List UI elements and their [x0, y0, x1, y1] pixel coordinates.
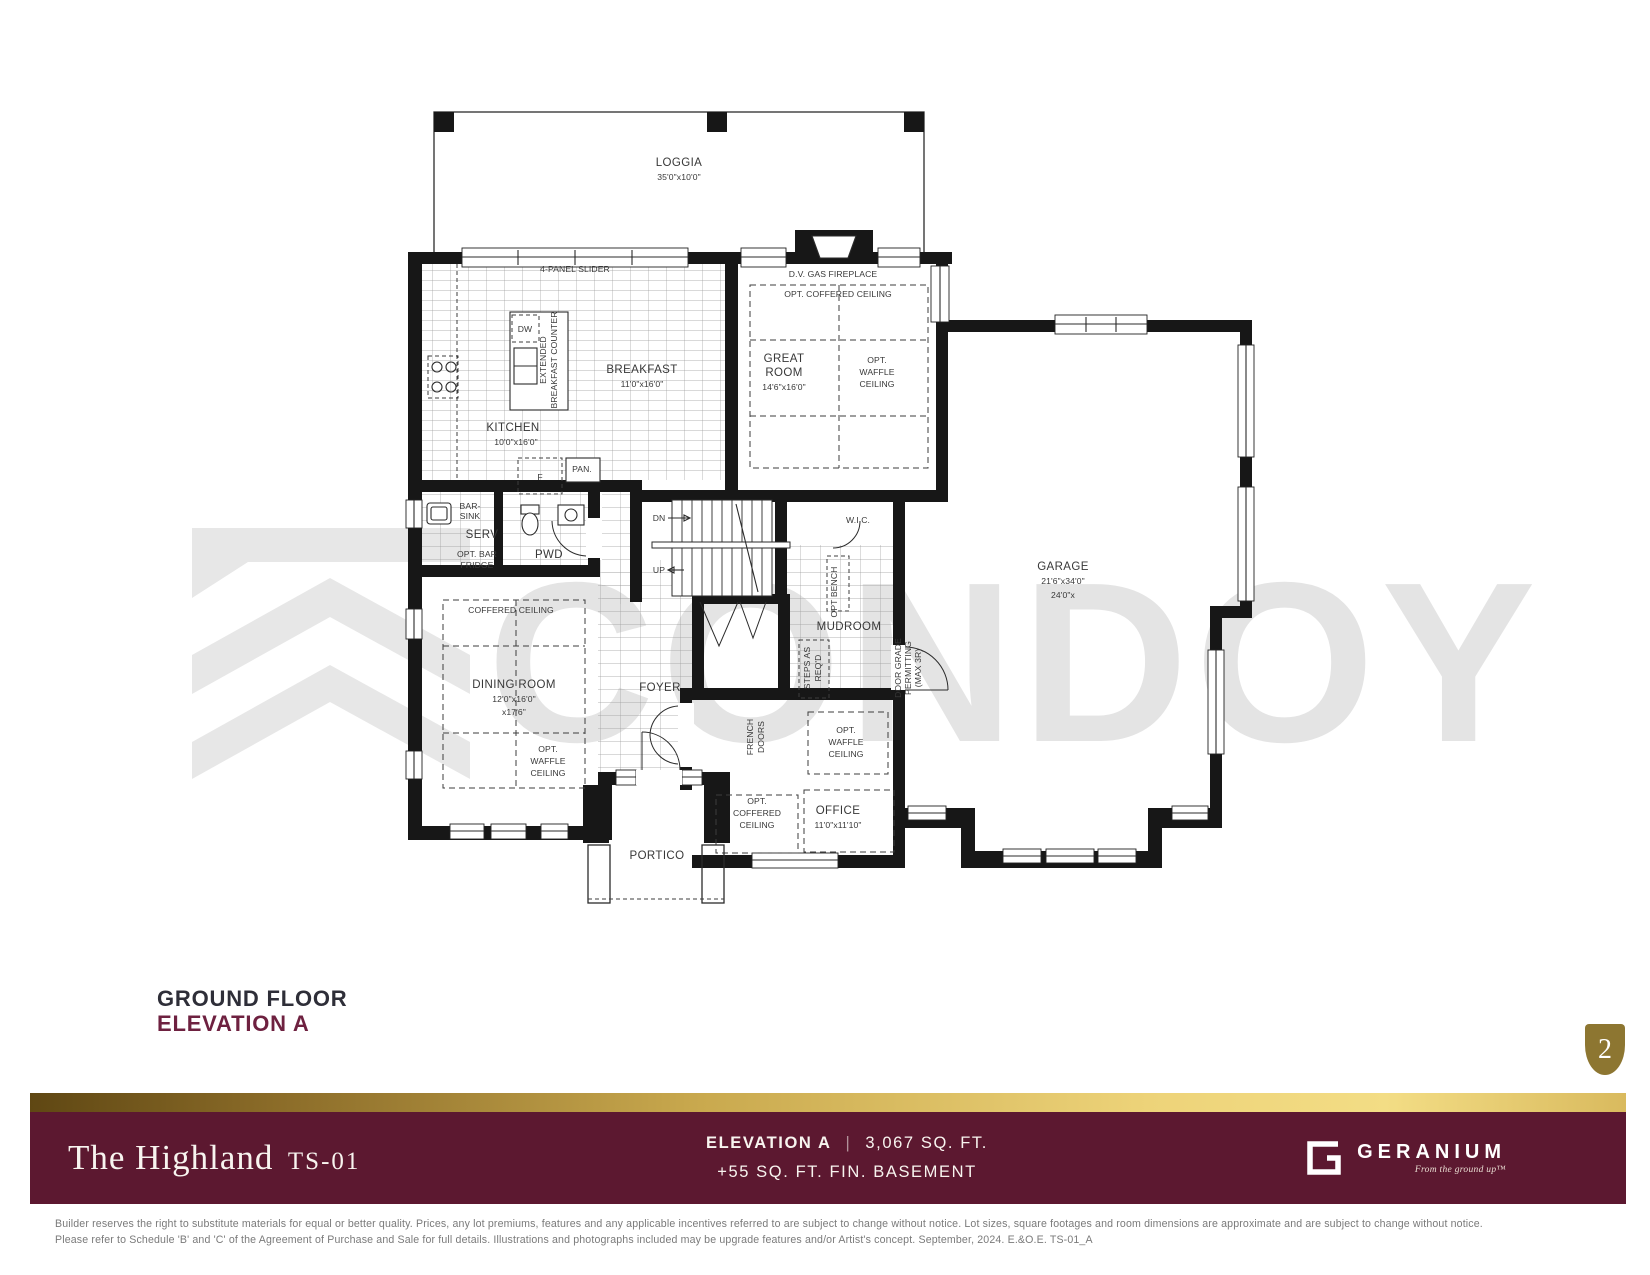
stats-divider: | [845, 1134, 851, 1152]
plan-label: FRIDGE [460, 560, 493, 570]
plan-label: F [537, 472, 542, 482]
plan-label: KITCHEN [486, 422, 539, 434]
plan-label: REQ'D [813, 655, 823, 682]
plan-label: OFFICE [816, 805, 861, 817]
plan-label: OPT. [747, 796, 767, 806]
plan-label: DOOR GRADE [893, 638, 903, 698]
plan-label: WAFFLE [828, 737, 863, 747]
plan-label: 11'0"x16'0" [621, 379, 664, 389]
plan-heading: GROUND FLOOR ELEVATION A [157, 986, 347, 1036]
floor-title: GROUND FLOOR [157, 986, 347, 1011]
brand-block: GERANIUM From the ground up™ [1206, 1138, 1626, 1178]
basement-value: +55 SQ. FT. FIN. BASEMENT [488, 1158, 1206, 1187]
plan-label: CEILING [739, 820, 774, 830]
plan-label: WAFFLE [859, 367, 894, 377]
plan-label: PORTICO [630, 850, 685, 862]
plan-label: CEILING [828, 749, 863, 759]
plan-label: LOGGIA [656, 157, 703, 169]
plan-label: DINING ROOM [472, 679, 556, 691]
plan-label: 24'0"x [1051, 590, 1076, 600]
plan-label: BREAKFAST COUNTER [549, 311, 559, 408]
plan-label: OPT. BAR [457, 549, 497, 559]
plan-label: EXTENDED [538, 336, 548, 384]
plan-label: 12'0"x16'0" [492, 694, 535, 704]
plan-label: 14'6"x16'0" [762, 382, 805, 392]
plan-label: SERV [466, 529, 499, 541]
floor-plan: CONDOY [0, 0, 1650, 1275]
plan-label: DW [518, 324, 533, 334]
plan-label: PERMITTING [903, 641, 913, 695]
plan-label: CEILING [859, 379, 894, 389]
plan-label: OPT. COFFERED CEILING [784, 289, 892, 299]
plan-label: FOYER [639, 682, 681, 694]
plan-label: 21'6"x34'0" [1041, 576, 1084, 586]
plan-label: UP [653, 565, 665, 575]
model-title: The Highland TS-01 [30, 1138, 488, 1178]
plan-label: D.V. GAS FIREPLACE [789, 269, 878, 279]
plan-label: PWD [535, 549, 563, 561]
plan-label: STEPS AS [802, 647, 812, 690]
plan-label: WAFFLE [530, 756, 565, 766]
plan-label: OPT. [836, 725, 856, 735]
brand-tagline: From the ground up™ [1357, 1165, 1506, 1175]
disclaimer-line-2: Please refer to Schedule 'B' and 'C' of … [55, 1233, 1525, 1249]
plan-label: MUDROOM [817, 621, 882, 633]
plan-label: OPT. [867, 355, 887, 365]
plan-label: ROOM [765, 367, 802, 379]
plan-label: GARAGE [1037, 561, 1089, 573]
disclaimer: Builder reserves the right to substitute… [55, 1217, 1525, 1248]
geranium-icon [1304, 1138, 1344, 1178]
plan-label: FRENCH [745, 719, 755, 755]
plan-label: SINK [460, 511, 481, 521]
plan-label: DN [653, 513, 666, 523]
brand-text: GERANIUM From the ground up™ [1357, 1141, 1506, 1175]
model-stats: ELEVATION A|3,067 SQ. FT. +55 SQ. FT. FI… [488, 1129, 1206, 1187]
plan-label: x17'6" [502, 707, 526, 717]
plan-label: COFFERED CEILING [468, 605, 554, 615]
plan-label: DOORS [756, 721, 766, 753]
plan-label: COFFERED [733, 808, 781, 818]
page-number: 2 [1598, 1034, 1612, 1066]
plan-label: GREAT [764, 353, 805, 365]
plan-label: 4-PANEL SLIDER [540, 264, 610, 274]
plan-label: BAR- [460, 501, 481, 511]
plan-label: OPT BENCH [829, 567, 839, 618]
disclaimer-line-1: Builder reserves the right to substitute… [55, 1217, 1525, 1233]
plan-label: W.I.C. [846, 515, 870, 525]
brand-name: GERANIUM [1357, 1141, 1506, 1164]
plan-label: (MAX 3R) [913, 649, 923, 688]
plan-label: 10'0"x16'0" [494, 437, 537, 447]
plan-label: OPT. [538, 744, 558, 754]
plan-label: 11'0"x11'10" [814, 820, 861, 830]
model-code: TS-01 [288, 1148, 361, 1175]
gold-accent-strip [30, 1093, 1626, 1112]
plan-label: CEILING [530, 768, 565, 778]
plan-label: 35'0"x10'0" [657, 172, 700, 182]
footer-banner: The Highland TS-01 ELEVATION A|3,067 SQ.… [30, 1112, 1626, 1204]
plan-label: PAN. [572, 464, 592, 474]
plan-label: BREAKFAST [606, 364, 677, 376]
elevation-subtitle: ELEVATION A [157, 1011, 347, 1036]
model-name: The Highland [68, 1138, 273, 1177]
area-value: 3,067 SQ. FT. [865, 1134, 988, 1152]
staircase [652, 500, 790, 596]
elevation-label: ELEVATION A [706, 1134, 831, 1152]
